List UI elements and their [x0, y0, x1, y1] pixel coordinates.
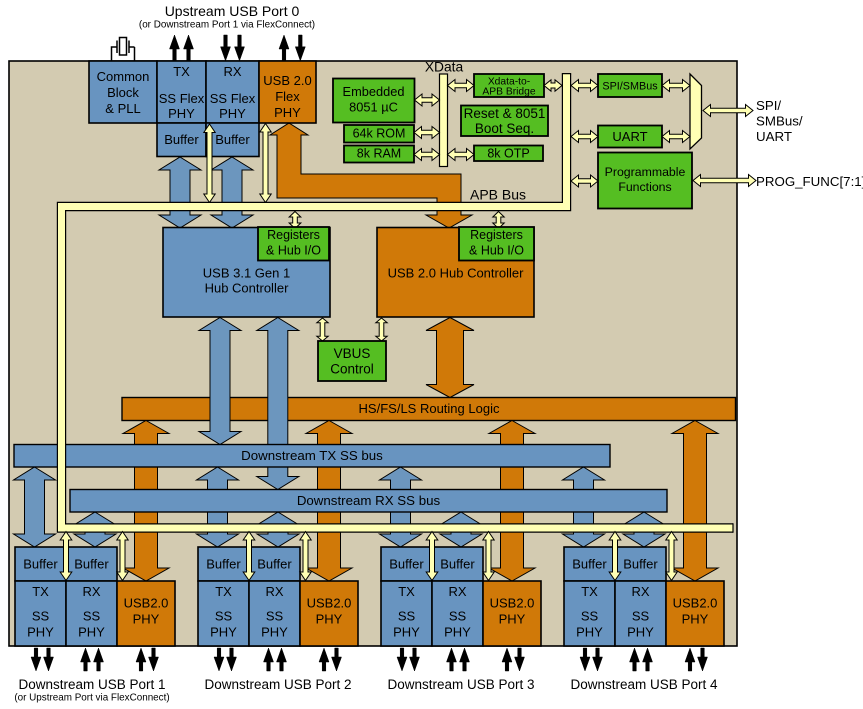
svg-text:USB 2.0 Hub Controller: USB 2.0 Hub Controller: [388, 266, 525, 281]
svg-text:Programmable: Programmable: [605, 165, 686, 179]
svg-text:USB 3.1 Gen 1: USB 3.1 Gen 1: [203, 266, 290, 281]
svg-text:USB2.0: USB2.0: [673, 596, 718, 611]
svg-text:Buffer: Buffer: [623, 557, 658, 572]
svg-text:Boot Seq.: Boot Seq.: [475, 121, 534, 136]
svg-text:Control: Control: [330, 362, 374, 377]
svg-text:SS: SS: [581, 609, 599, 624]
svg-text:Reset & 8051: Reset & 8051: [464, 106, 546, 121]
svg-text:USB2.0: USB2.0: [307, 596, 352, 611]
svg-text:Buffer: Buffer: [572, 557, 607, 572]
svg-text:PHY: PHY: [210, 625, 237, 640]
svg-text:RX: RX: [631, 584, 649, 599]
svg-text:PHY: PHY: [627, 625, 654, 640]
svg-text:SMBus/: SMBus/: [756, 114, 803, 129]
svg-text:Flex: Flex: [275, 89, 300, 104]
svg-text:PHY: PHY: [393, 625, 420, 640]
svg-text:Buffer: Buffer: [23, 557, 58, 572]
svg-text:Buffer: Buffer: [215, 132, 250, 147]
svg-text:Buffer: Buffer: [440, 557, 475, 572]
svg-text:SS Flex: SS Flex: [159, 91, 205, 106]
svg-text:64k ROM: 64k ROM: [353, 127, 406, 141]
svg-text:RX: RX: [265, 584, 283, 599]
svg-text:PROG_FUNC[7:1]: PROG_FUNC[7:1]: [756, 174, 863, 189]
svg-text:Buffer: Buffer: [389, 557, 424, 572]
svg-text:SPI/: SPI/: [756, 98, 781, 113]
svg-text:SPI/SMBus: SPI/SMBus: [602, 81, 658, 93]
svg-text:Upstream USB Port 0: Upstream USB Port 0: [165, 3, 300, 19]
svg-text:USB 2.0: USB 2.0: [263, 73, 311, 88]
svg-text:Buffer: Buffer: [206, 557, 241, 572]
svg-text:Downstream USB Port 2: Downstream USB Port 2: [204, 677, 351, 692]
svg-text:APB Bridge: APB Bridge: [482, 87, 536, 98]
svg-text:Registers: Registers: [267, 228, 320, 242]
svg-text:Downstream USB Port 1: Downstream USB Port 1: [18, 677, 165, 692]
svg-text:PHY: PHY: [316, 612, 343, 627]
svg-text:Downstream USB Port 4: Downstream USB Port 4: [570, 677, 718, 692]
svg-text:XData: XData: [425, 60, 464, 75]
svg-text:TX: TX: [581, 584, 598, 599]
svg-text:Buffer: Buffer: [257, 557, 292, 572]
svg-text:PHY: PHY: [219, 106, 246, 121]
svg-text:USB2.0: USB2.0: [490, 596, 535, 611]
svg-text:PHY: PHY: [274, 105, 301, 120]
svg-text:SS Flex: SS Flex: [210, 91, 256, 106]
svg-text:PHY: PHY: [682, 612, 709, 627]
svg-text:& Hub I/O: & Hub I/O: [266, 244, 321, 258]
svg-text:PHY: PHY: [27, 625, 54, 640]
svg-text:HS/FS/LS Routing Logic: HS/FS/LS Routing Logic: [359, 401, 500, 416]
svg-text:PHY: PHY: [261, 625, 288, 640]
svg-text:(or Upstream Port via FlexConn: (or Upstream Port via FlexConnect): [14, 693, 169, 704]
svg-text:8k RAM: 8k RAM: [357, 147, 401, 161]
svg-text:SS: SS: [266, 609, 284, 624]
svg-text:TX: TX: [32, 584, 49, 599]
svg-text:VBUS: VBUS: [334, 346, 371, 361]
svg-text:8051 µC: 8051 µC: [349, 100, 398, 115]
svg-text:TX: TX: [173, 64, 190, 79]
svg-text:8k OTP: 8k OTP: [487, 147, 529, 161]
svg-text:UART: UART: [756, 129, 792, 144]
svg-text:SS: SS: [449, 609, 467, 624]
svg-text:PHY: PHY: [444, 625, 471, 640]
svg-text:TX: TX: [215, 584, 232, 599]
svg-text:Hub Controller: Hub Controller: [205, 281, 289, 296]
svg-text:SS: SS: [632, 609, 650, 624]
svg-text:SS: SS: [215, 609, 233, 624]
svg-text:SS: SS: [32, 609, 50, 624]
svg-text:Functions: Functions: [618, 180, 671, 194]
svg-text:& Hub I/O: & Hub I/O: [469, 244, 524, 258]
svg-text:PHY: PHY: [133, 612, 160, 627]
svg-text:UART: UART: [612, 129, 647, 144]
svg-text:& PLL: & PLL: [105, 101, 140, 116]
svg-text:Buffer: Buffer: [164, 132, 199, 147]
svg-text:(or Downstream Port 1 via Flex: (or Downstream Port 1 via FlexConnect): [139, 20, 315, 31]
svg-text:RX: RX: [448, 584, 466, 599]
svg-text:Downstream USB Port 3: Downstream USB Port 3: [387, 677, 534, 692]
svg-text:Embedded: Embedded: [343, 84, 405, 99]
svg-text:Block: Block: [107, 85, 139, 100]
svg-text:Common: Common: [97, 69, 150, 84]
svg-text:PHY: PHY: [168, 106, 195, 121]
svg-text:Downstream TX SS bus: Downstream TX SS bus: [241, 448, 383, 463]
svg-text:PHY: PHY: [576, 625, 603, 640]
svg-text:Registers: Registers: [470, 228, 523, 242]
svg-text:Downstream RX SS bus: Downstream RX SS bus: [297, 493, 441, 508]
svg-text:USB2.0: USB2.0: [124, 596, 169, 611]
svg-text:Buffer: Buffer: [74, 557, 109, 572]
svg-text:RX: RX: [82, 584, 100, 599]
svg-text:SS: SS: [83, 609, 101, 624]
svg-text:SS: SS: [398, 609, 416, 624]
svg-text:APB Bus: APB Bus: [470, 187, 526, 203]
svg-text:PHY: PHY: [78, 625, 105, 640]
svg-text:RX: RX: [223, 64, 241, 79]
svg-text:TX: TX: [398, 584, 415, 599]
svg-text:PHY: PHY: [499, 612, 526, 627]
